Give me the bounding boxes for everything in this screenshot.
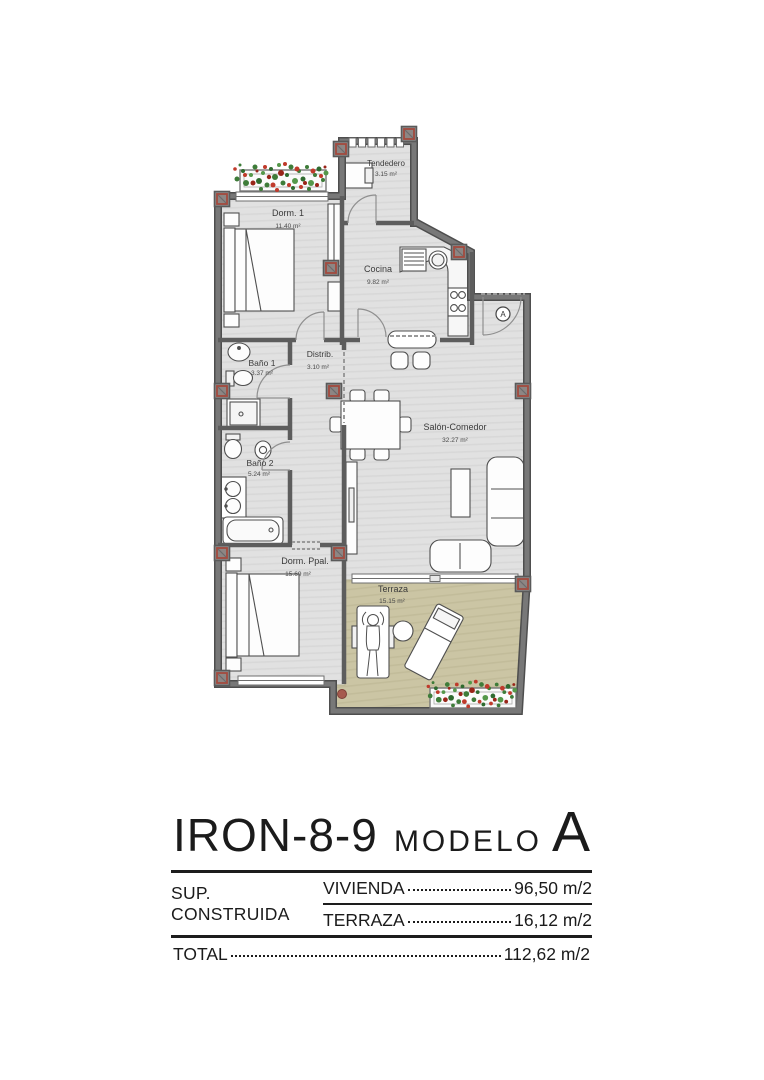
total-row: TOTAL 112,62 m/2: [171, 938, 592, 965]
model-word: MODELO: [394, 827, 542, 857]
svg-text:Baño 2: Baño 2: [247, 458, 274, 468]
window-dorm-ppal: [238, 676, 324, 685]
svg-text:Terraza: Terraza: [378, 584, 408, 594]
svg-text:Tendedero: Tendedero: [367, 159, 405, 168]
bed-dorm1: [224, 213, 294, 327]
svg-text:3.37 m²: 3.37 m²: [251, 370, 274, 377]
shower-bano1: [227, 399, 260, 428]
svg-text:11.40 m²: 11.40 m²: [275, 223, 301, 230]
plan-sheet: A Tendedero 3.15 m² Dorm. 1 11.40 m² Coc…: [0, 0, 764, 1080]
svg-text:Dorm. 1: Dorm. 1: [272, 208, 304, 218]
svg-text:32.27 m²: 32.27 m²: [442, 437, 468, 444]
entrance-marker: A: [496, 307, 510, 321]
entrance-letter: A: [500, 310, 506, 319]
svg-text:3.10 m²: 3.10 m²: [307, 364, 330, 371]
svg-text:9.82 m²: 9.82 m²: [367, 279, 390, 286]
sideboard: [346, 462, 357, 554]
dot-leader: [231, 955, 501, 957]
title-row: IRON-8-9 MODELO A: [171, 804, 592, 861]
dot-leader: [408, 921, 511, 923]
svg-text:Salón-Comedor: Salón-Comedor: [423, 422, 486, 432]
sun-lounger-1: [352, 606, 394, 678]
window-dorm1: [236, 192, 328, 201]
double-washbasin-bano2: [220, 477, 246, 518]
bathtub-bano2: [223, 517, 283, 544]
row-value: 96,50 m/2: [514, 878, 592, 899]
svg-text:15.15 m²: 15.15 m²: [379, 598, 405, 605]
surface-row-terraza: TERRAZA 16,12 m/2: [323, 903, 592, 935]
row-label: VIVIENDA: [323, 878, 405, 899]
bidet-bano2: [255, 441, 271, 459]
model-letter: A: [552, 804, 590, 861]
svg-text:Baño 1: Baño 1: [249, 358, 276, 368]
svg-text:Dorm. Ppal.: Dorm. Ppal.: [281, 556, 329, 566]
row-value: 16,12 m/2: [514, 910, 592, 931]
surface-table: SUP. CONSTRUIDA VIVIENDA 96,50 m/2 TERRA…: [171, 870, 592, 938]
terrace-drain: [338, 690, 347, 699]
coffee-table: [451, 469, 470, 517]
svg-text:15.69 m²: 15.69 m²: [285, 571, 311, 578]
terrace-sliding-door: [352, 574, 518, 583]
total-value: 112,62 m/2: [504, 944, 590, 965]
toilet-bano2: [225, 434, 242, 459]
surface-row-vivienda: VIVIENDA 96,50 m/2: [323, 873, 592, 903]
svg-text:Cocina: Cocina: [364, 264, 392, 274]
washbasin-bano1: [228, 343, 250, 361]
room-label-bano1: Baño 1 3.37 m²: [249, 358, 276, 377]
svg-text:3.15 m²: 3.15 m²: [375, 171, 398, 178]
wardrobe-dorm1: [328, 204, 341, 311]
terrace-table: [393, 621, 413, 641]
surface-label: SUP. CONSTRUIDA: [171, 873, 323, 935]
dot-leader: [408, 889, 511, 891]
title-block: IRON-8-9 MODELO A SUP. CONSTRUIDA VIVIEN…: [171, 804, 592, 965]
svg-text:5.24 m²: 5.24 m²: [248, 471, 271, 478]
row-label: TERRAZA: [323, 910, 405, 931]
total-label: TOTAL: [173, 944, 228, 965]
model-code: IRON-8-9: [173, 812, 378, 858]
svg-text:Distrib.: Distrib.: [307, 349, 333, 359]
